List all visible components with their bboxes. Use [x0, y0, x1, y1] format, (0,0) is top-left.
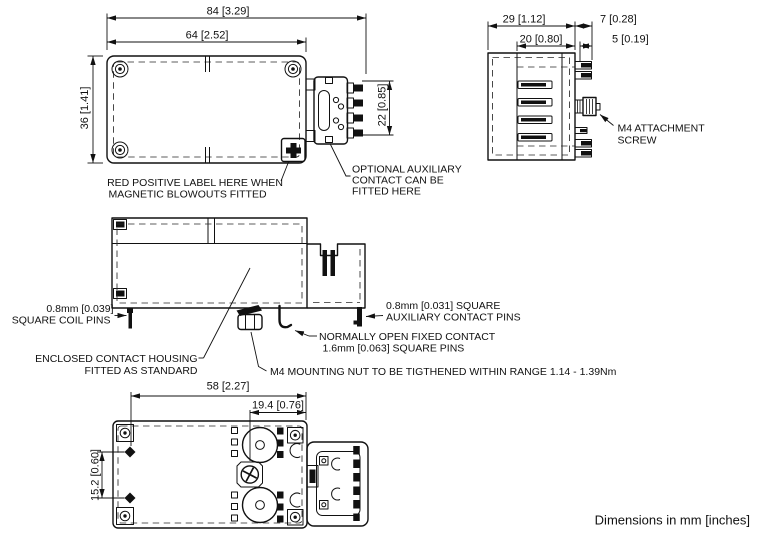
aux-contact-pins — [347, 83, 363, 138]
aux-housing-bottom — [307, 442, 368, 526]
bottom-corner-bosses — [117, 425, 304, 526]
plan-view: 84 [3.29] 64 [2.52] 36 [1.41] 22 [0.85] … — [79, 6, 462, 201]
dim-84-label: 84 [3.29] — [207, 6, 250, 18]
corner-screw-bottom-left — [112, 142, 128, 158]
aux-contact-block — [306, 77, 348, 144]
front-body-outline — [112, 218, 307, 308]
optional-aux-callout: OPTIONAL AUXILIARY CONTACT CAN BE FITTED… — [331, 145, 462, 198]
fixed-contact-label-line1: NORMALLY OPEN FIXED CONTACT — [319, 331, 496, 343]
optional-aux-label-line3: FITTED HERE — [352, 186, 421, 198]
m4-screw-label-line1: M4 ATTACHMENT — [618, 123, 706, 135]
housing-label-line2: FITTED AS STANDARD — [85, 365, 198, 377]
coil-pin — [127, 308, 133, 329]
housing-label-line1: ENCLOSED CONTACT HOUSING — [35, 353, 197, 365]
fixed-contact-label-line2: 1.6mm [0.063] SQUARE PINS — [323, 343, 465, 355]
dim-15-2-label: 15.2 [0.60] — [90, 449, 102, 501]
dim-20-body-depth: 20 [0.80] — [517, 34, 575, 52]
red-positive-label-line1: RED POSITIVE LABEL HERE WHEN — [107, 177, 283, 189]
aux-pin-front — [354, 307, 363, 327]
technical-drawing-page: 84 [3.29] 64 [2.52] 36 [1.41] 22 [0.85] … — [0, 0, 761, 537]
units-note: Dimensions in mm [inches] — [595, 513, 750, 528]
center-mounting-screw — [237, 462, 263, 487]
red-positive-label-line2: MAGNETIC BLOWOUTS FITTED — [108, 189, 267, 201]
side-contact-slots — [518, 81, 552, 141]
dim-36-height: 36 [1.41] — [79, 56, 103, 163]
blowout-magnets — [243, 428, 278, 523]
dim-7-label: 7 [0.28] — [600, 14, 637, 26]
corner-screw-top-left — [112, 61, 128, 77]
side-view: 29 [1.12] 7 [0.28] 20 [0.80] 5 [0.19] M4… — [488, 14, 705, 161]
mounting-nut-label: M4 MOUNTING NUT TO BE TIGTHENED WITHIN R… — [270, 366, 617, 378]
aux-pins-label-line2: AUXILIARY CONTACT PINS — [386, 312, 521, 324]
front-view: 0.8mm [0.039] SQUARE COIL PINS ENCLOSED … — [12, 218, 617, 378]
dim-15-2-hole-pitch: 15.2 [0.60] — [90, 449, 125, 501]
dim-58-mount-width: 58 [2.27] — [131, 381, 306, 447]
m4-screw-callout: M4 ATTACHMENT SCREW — [600, 115, 705, 147]
coil-pins-label-line2: SQUARE COIL PINS — [12, 315, 111, 327]
fixed-contact-hook-pin — [280, 306, 292, 327]
coil-pins-callout: 0.8mm [0.039] SQUARE COIL PINS — [12, 303, 127, 327]
dim-64-body-width: 64 [2.52] — [107, 30, 306, 53]
bottom-body-outline — [113, 421, 307, 528]
dim-19-4-label: 19.4 [0.76] — [252, 400, 304, 412]
aux-pins-label-line1: 0.8mm [0.031] SQUARE — [386, 300, 500, 312]
dim-84-total-width: 84 [3.29] — [107, 6, 366, 75]
dim-5-label: 5 [0.19] — [612, 34, 649, 46]
dim-36-label: 36 [1.41] — [79, 87, 91, 130]
corner-screw-top-right — [285, 61, 301, 77]
dim-20-label: 20 [0.80] — [520, 34, 563, 46]
mounting-hole-markers — [125, 447, 136, 504]
edge-cutouts — [290, 444, 300, 507]
front-aux-housing-extension — [307, 244, 365, 308]
dim-22-aux-height: 22 [0.85] — [362, 81, 394, 135]
red-positive-callout: RED POSITIVE LABEL HERE WHEN MAGNETIC BL… — [107, 162, 288, 201]
dim-58-label: 58 [2.27] — [207, 381, 250, 393]
dim-5-aux-pin-depth: 5 [0.19] — [580, 34, 649, 63]
bottom-view: 58 [2.27] 19.4 [0.76] 15.2 [0.60] — [90, 381, 369, 529]
coil-pins-label-line1: 0.8mm [0.039] — [46, 303, 113, 315]
m4-attachment-screw — [575, 98, 600, 116]
positive-label-box — [282, 139, 306, 162]
aux-pins-callout: 0.8mm [0.031] SQUARE AUXILIARY CONTACT P… — [366, 300, 521, 324]
dim-64-label: 64 [2.52] — [186, 30, 229, 42]
fixed-contact-callout: NORMALLY OPEN FIXED CONTACT 1.6mm [0.063… — [295, 331, 496, 355]
dim-22-label: 22 [0.85] — [377, 84, 389, 127]
dim-29-label: 29 [1.12] — [503, 14, 546, 26]
relay-dimension-drawing: 84 [3.29] 64 [2.52] 36 [1.41] 22 [0.85] … — [0, 0, 761, 537]
plan-body-outline — [107, 56, 306, 163]
m4-screw-label-line2: SCREW — [618, 135, 657, 147]
